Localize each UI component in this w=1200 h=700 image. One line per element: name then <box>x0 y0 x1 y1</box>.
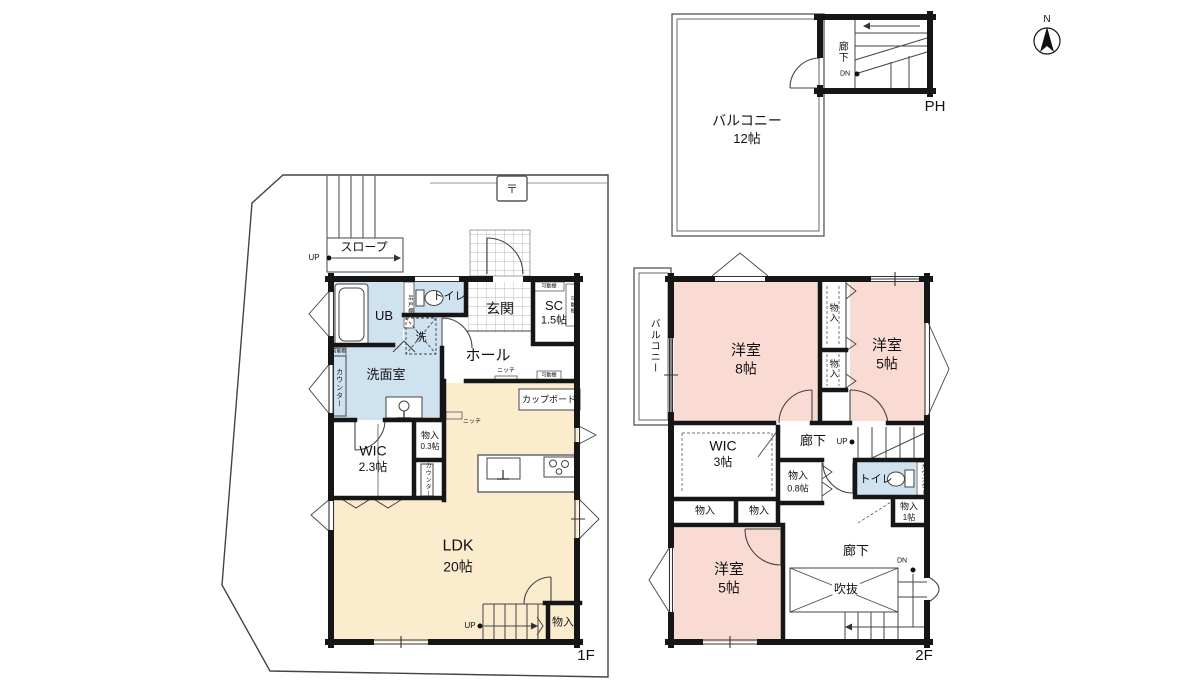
ldk-label: LDK <box>442 539 473 556</box>
sc-label: SC <box>545 299 563 313</box>
floor-plan-graphics <box>0 0 1200 700</box>
toilet-2f-label: トイレ <box>860 474 893 485</box>
niche2-label: ニッチ <box>463 419 481 425</box>
counter-right-label: カウンター <box>424 463 430 498</box>
cupboard-label: カップボード <box>522 395 576 404</box>
storage08-label: 物入 <box>788 472 808 482</box>
storage1-label: 物入 <box>900 502 918 511</box>
room5b-label: 洋室 <box>714 562 744 578</box>
wic3-label: WIC <box>709 439 736 454</box>
closet-upper-label: 物入 <box>828 303 837 323</box>
niche1-label: ニッチ <box>497 368 515 374</box>
slope-label: スロープ <box>340 241 387 253</box>
closet-lower-label: 物入 <box>828 359 837 379</box>
ldk-size-label: 20帖 <box>443 560 473 575</box>
f2-balcony-label: バルコニー <box>648 319 658 374</box>
hall-label: ホール <box>465 348 510 364</box>
postbox-glyph: 〒 <box>506 183 518 195</box>
storage-bottom-label: 物入 <box>552 617 574 628</box>
closet-b1-label: 物入 <box>695 507 715 517</box>
ub-label: UB <box>375 309 393 323</box>
stairs-up-label: UP <box>464 622 475 630</box>
storage1-size-label: 1帖 <box>903 514 915 522</box>
dn2-label: DN <box>897 557 907 564</box>
kitchen-island <box>478 455 578 492</box>
sc-size-label: 1.5帖 <box>541 315 567 326</box>
room-ldk-left <box>333 500 444 642</box>
washbasin-icon <box>386 397 422 418</box>
shelf-counter-label: 可動棚 <box>332 350 346 355</box>
room5b-size-label: 5帖 <box>718 581 740 596</box>
ph-balcony-size: 12帖 <box>733 132 760 146</box>
ph-dn-label: DN <box>840 70 850 77</box>
bathtub-icon <box>335 284 368 345</box>
washer-label: 洗 <box>416 332 427 343</box>
entrance-label: 玄関 <box>486 302 514 317</box>
ph-label: PH <box>925 99 946 115</box>
washroom-label: 洗面室 <box>366 368 405 382</box>
counter-2f-label: カウンター <box>919 464 925 497</box>
hall-bottom-label: 廊下 <box>843 544 869 558</box>
wic1-label: WIC <box>359 444 386 459</box>
counter-left-label: カウンター <box>335 368 342 408</box>
ph-hall-label: 廊下 <box>836 41 846 63</box>
wic1-size-label: 2.3帖 <box>359 461 388 473</box>
stairs-2f-up <box>850 427 928 458</box>
room5a-size-label: 5帖 <box>876 357 898 372</box>
entrance-porch <box>470 230 530 276</box>
slope-up-label: UP <box>308 254 319 262</box>
floor2-label: 2F <box>915 648 933 664</box>
ph-stairs <box>855 17 928 91</box>
hanging-shelf-label: 吊戸棚 <box>406 295 412 315</box>
storage-small-label: 物入 <box>421 431 439 440</box>
north-arrow-icon <box>1034 27 1060 54</box>
floor1-label: 1F <box>577 648 595 664</box>
up2-label: UP <box>836 438 847 446</box>
closet-b2-label: 物入 <box>749 507 769 517</box>
floor-plan: N バルコニー 12帖 廊下 DN PH スロープ UP 〒 UB 吊戸棚 トイ… <box>0 0 1200 700</box>
room5a-label: 洋室 <box>872 338 902 354</box>
shelf-sc-side-label: 可動棚 <box>569 296 574 314</box>
void-label: 吹抜 <box>832 583 860 595</box>
room8-size-label: 8帖 <box>735 362 757 377</box>
hall-mid-label: 廊下 <box>800 434 826 448</box>
toilet-1f-label: トイレ <box>433 291 466 302</box>
shelf-sc-top-label: 可動棚 <box>541 284 556 289</box>
storage08-size-label: 0.8帖 <box>787 484 809 493</box>
shelf-hall-label: 可動棚 <box>541 373 556 378</box>
wic3-size-label: 3帖 <box>714 456 733 468</box>
room8-label: 洋室 <box>731 343 761 359</box>
ph-balcony-label: バルコニー <box>712 114 782 129</box>
storage-small-size-label: 0.3帖 <box>420 443 439 451</box>
north-label: N <box>1043 15 1050 25</box>
